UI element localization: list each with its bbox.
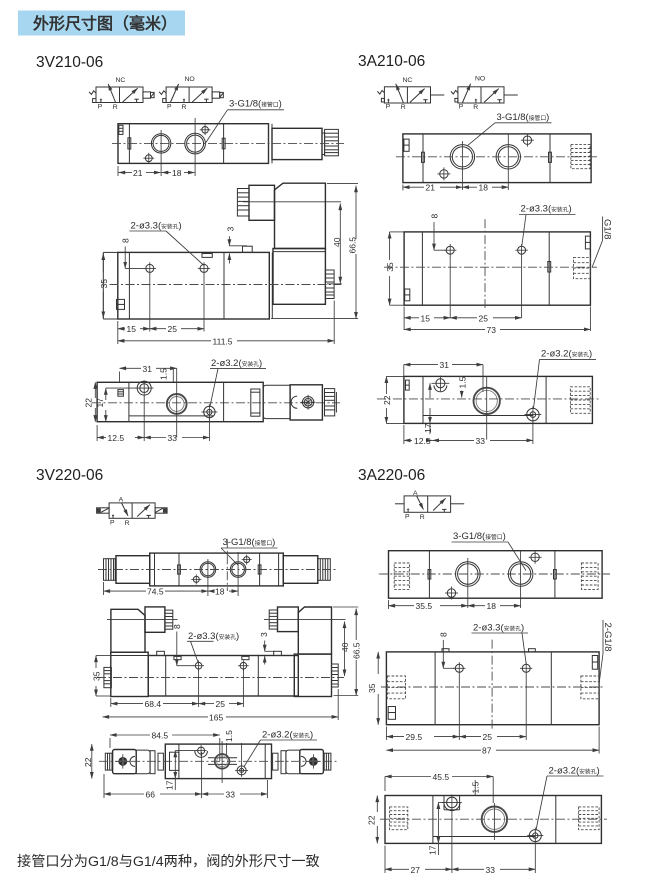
svg-text:18: 18 xyxy=(479,183,489,193)
svg-text:P: P xyxy=(167,104,172,111)
svg-text:21: 21 xyxy=(426,183,436,193)
svg-text:G1/8: G1/8 xyxy=(602,219,613,240)
svg-text:R: R xyxy=(473,104,478,111)
svg-text:P: P xyxy=(459,103,464,110)
svg-text:84.5: 84.5 xyxy=(152,731,169,741)
svg-text:66: 66 xyxy=(146,790,156,800)
svg-text:NC: NC xyxy=(403,77,413,84)
svg-text:74.5: 74.5 xyxy=(147,587,164,597)
svg-text:31: 31 xyxy=(440,360,450,370)
svg-text:33: 33 xyxy=(486,865,496,875)
svg-text:8: 8 xyxy=(172,624,182,629)
svg-text:NC: NC xyxy=(116,77,126,84)
svg-text:3V210-06: 3V210-06 xyxy=(36,54,103,71)
svg-text:73: 73 xyxy=(487,325,497,335)
svg-text:1.5: 1.5 xyxy=(457,376,467,388)
svg-text:P: P xyxy=(386,103,391,110)
svg-text:18: 18 xyxy=(487,601,497,611)
svg-text:12.5: 12.5 xyxy=(414,436,431,446)
svg-text:15: 15 xyxy=(127,324,137,334)
svg-text:35.5: 35.5 xyxy=(416,601,433,611)
svg-text:P: P xyxy=(110,519,115,526)
svg-text:15: 15 xyxy=(421,313,431,323)
svg-text:P: P xyxy=(98,104,103,111)
svg-text:8: 8 xyxy=(438,632,448,637)
svg-text:29.5: 29.5 xyxy=(406,732,423,742)
svg-text:33: 33 xyxy=(168,433,178,443)
svg-text:3A210-06: 3A210-06 xyxy=(358,53,425,70)
svg-text:接管口分为G1/8与G1/4两种，阀的外形尺寸一致: 接管口分为G1/8与G1/4两种，阀的外形尺寸一致 xyxy=(17,853,320,870)
svg-text:35: 35 xyxy=(99,279,109,289)
svg-text:R: R xyxy=(182,104,187,111)
svg-text:3: 3 xyxy=(259,632,269,637)
svg-text:45.5: 45.5 xyxy=(433,772,450,782)
svg-text:40: 40 xyxy=(340,642,350,652)
svg-text:3V220-06: 3V220-06 xyxy=(36,467,103,484)
svg-text:66.5: 66.5 xyxy=(351,642,361,659)
svg-text:P: P xyxy=(405,513,410,520)
svg-text:NO: NO xyxy=(185,76,195,83)
svg-text:8: 8 xyxy=(120,238,130,243)
svg-text:21: 21 xyxy=(133,168,143,178)
svg-text:40: 40 xyxy=(332,237,342,247)
svg-text:R: R xyxy=(401,104,406,111)
svg-text:165: 165 xyxy=(209,712,223,722)
svg-text:R: R xyxy=(113,104,118,111)
svg-text:1.5: 1.5 xyxy=(159,368,169,380)
svg-text:33: 33 xyxy=(476,436,486,446)
svg-text:外形尺寸图（毫米）: 外形尺寸图（毫米） xyxy=(32,14,177,33)
svg-text:17: 17 xyxy=(164,780,174,790)
svg-text:R: R xyxy=(420,514,425,521)
svg-text:22: 22 xyxy=(83,757,93,767)
svg-text:27: 27 xyxy=(411,865,421,875)
svg-text:25: 25 xyxy=(483,732,493,742)
svg-text:18: 18 xyxy=(215,587,225,597)
svg-text:35: 35 xyxy=(385,262,395,272)
svg-text:8: 8 xyxy=(429,214,439,219)
svg-text:25: 25 xyxy=(216,699,226,709)
svg-text:33: 33 xyxy=(226,790,236,800)
svg-text:3A220-06: 3A220-06 xyxy=(358,467,425,484)
svg-text:NO: NO xyxy=(475,76,485,83)
svg-text:111.5: 111.5 xyxy=(213,336,233,346)
svg-text:87: 87 xyxy=(482,746,492,756)
svg-text:22: 22 xyxy=(366,815,376,825)
svg-text:17: 17 xyxy=(423,423,433,433)
svg-text:3: 3 xyxy=(226,227,236,232)
svg-text:R: R xyxy=(125,520,130,527)
svg-text:2-G1/8: 2-G1/8 xyxy=(602,623,613,652)
svg-text:12.5: 12.5 xyxy=(108,433,125,443)
svg-text:1.5: 1.5 xyxy=(224,730,234,742)
svg-text:31: 31 xyxy=(143,364,153,374)
svg-text:25: 25 xyxy=(168,324,178,334)
svg-text:17: 17 xyxy=(427,845,437,855)
svg-text:35: 35 xyxy=(367,683,377,693)
svg-text:35: 35 xyxy=(91,671,101,681)
svg-text:25: 25 xyxy=(479,313,489,323)
svg-text:18: 18 xyxy=(172,168,182,178)
svg-text:66.5: 66.5 xyxy=(348,237,358,254)
svg-text:22: 22 xyxy=(382,395,392,405)
svg-text:68.4: 68.4 xyxy=(145,699,162,709)
